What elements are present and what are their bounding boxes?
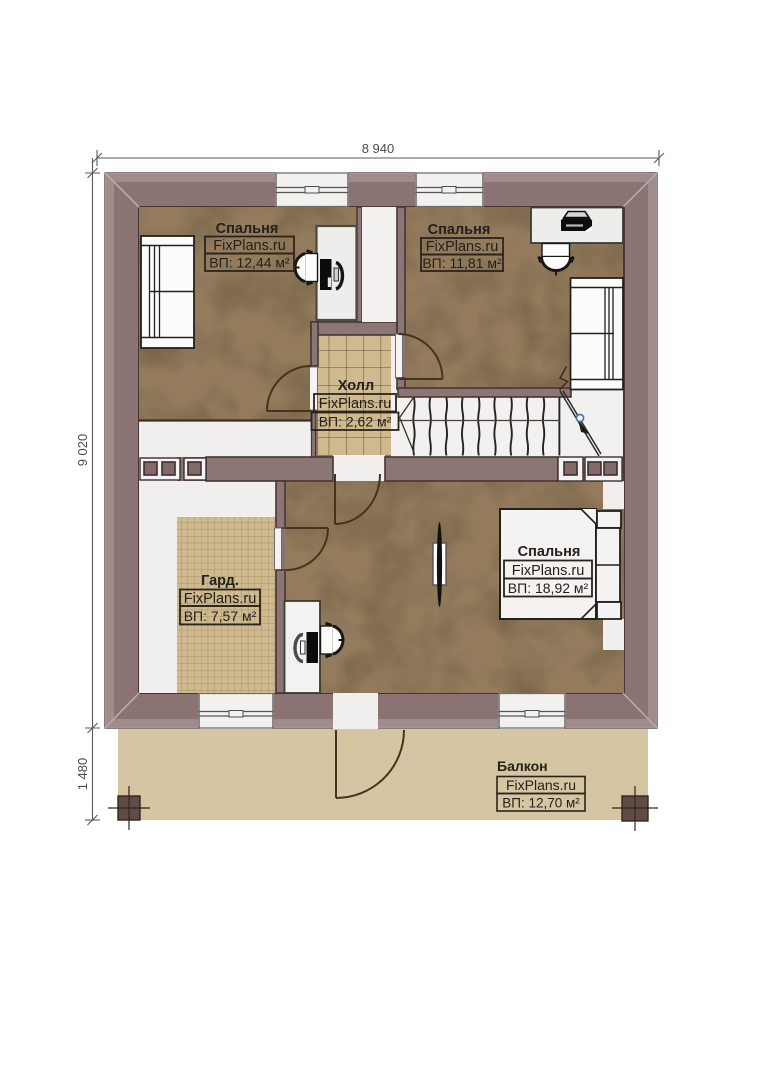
svg-text:Балкон: Балкон bbox=[497, 758, 548, 774]
svg-text:FixPlans.ru: FixPlans.ru bbox=[512, 563, 585, 579]
svg-text:Спальня: Спальня bbox=[428, 222, 491, 238]
svg-text:ВП: 12,70 м²: ВП: 12,70 м² bbox=[502, 796, 580, 811]
svg-text:Холл: Холл bbox=[338, 378, 374, 394]
svg-text:FixPlans.ru: FixPlans.ru bbox=[213, 238, 286, 254]
svg-text:8 940: 8 940 bbox=[362, 141, 395, 156]
svg-text:FixPlans.ru: FixPlans.ru bbox=[319, 396, 392, 412]
svg-text:Спальня: Спальня bbox=[518, 544, 581, 560]
svg-text:FixPlans.ru: FixPlans.ru bbox=[426, 239, 499, 255]
svg-text:FixPlans.ru: FixPlans.ru bbox=[506, 777, 576, 793]
svg-text:ВП: 11,81 м²: ВП: 11,81 м² bbox=[422, 255, 502, 271]
svg-text:ВП: 2,62 м²: ВП: 2,62 м² bbox=[319, 414, 392, 430]
svg-text:FixPlans.ru: FixPlans.ru bbox=[184, 591, 257, 607]
svg-text:9 020: 9 020 bbox=[75, 434, 90, 467]
svg-text:ВП: 12,44 м²: ВП: 12,44 м² bbox=[209, 255, 290, 271]
svg-text:1 480: 1 480 bbox=[75, 758, 90, 791]
svg-text:ВП: 7,57 м²: ВП: 7,57 м² bbox=[184, 608, 257, 624]
svg-text:ВП: 18,92 м²: ВП: 18,92 м² bbox=[508, 580, 589, 596]
svg-text:Гард.: Гард. bbox=[201, 573, 239, 589]
svg-text:Спальня: Спальня bbox=[216, 221, 279, 237]
